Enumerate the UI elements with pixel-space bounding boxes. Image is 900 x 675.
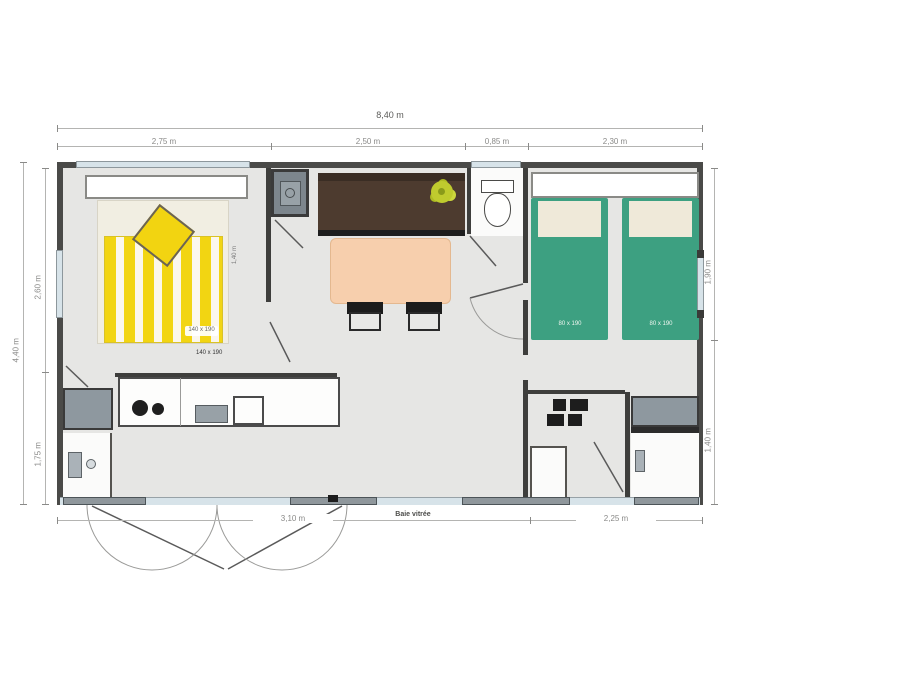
wall-twin-room-1: [523, 168, 528, 283]
bay-window-band: [60, 497, 700, 505]
closet-room: [530, 446, 567, 499]
fridge-cabinet: [63, 388, 113, 430]
wardrobe: [631, 396, 699, 427]
chair-right-seat: [408, 312, 440, 331]
twin-bed-right-size: 80 x 190: [631, 321, 691, 327]
sink-icon: [195, 405, 228, 423]
appliance-icon: [547, 399, 591, 427]
master-bed-side-dim: 1,40 m: [232, 246, 238, 264]
stove-burner-small-icon: [152, 403, 164, 415]
window-right: [697, 250, 704, 318]
wall-twin-room-2: [523, 300, 528, 355]
dim-top-seg-3: 0,85 m: [472, 137, 522, 146]
dim-top-total: 8,40 m: [340, 110, 440, 120]
twin-bed-right-pillow: [629, 201, 692, 237]
master-headboard-shelf: [85, 175, 248, 199]
kitchen-worktop-edge: [318, 173, 465, 181]
dim-right-seg-1: 1,90 m: [704, 225, 713, 285]
master-bed-size-text: 140 x 190: [196, 350, 222, 356]
dining-table: [330, 238, 451, 304]
stove-burners-icon: [132, 400, 148, 416]
toilet-tank-icon: [481, 180, 514, 193]
door-handle-icon: [328, 495, 338, 502]
twin-bed-left-size: 80 x 190: [540, 321, 600, 327]
dim-right-seg-line: [714, 168, 715, 505]
dim-left-seg-1: 2,60 m: [34, 240, 43, 300]
kitchen-counter-divider: [180, 378, 181, 426]
dim-left-seg-2: 1,75 m: [34, 407, 43, 467]
window-master-top: [76, 161, 250, 168]
window-left: [56, 250, 63, 318]
dim-top-seg-1: 2,75 m: [124, 137, 204, 146]
dim-right-seg-2: 1,40 m: [704, 393, 713, 453]
dim-top-seg-2: 2,50 m: [328, 137, 408, 146]
washbasin-tap-icon: [86, 459, 96, 469]
dim-left-seg-line: [45, 168, 46, 505]
shower-icon: [635, 450, 645, 472]
wall-bathroom-hall: [528, 390, 625, 394]
chair-left-seat: [349, 312, 381, 331]
kitchen-counter: [118, 377, 340, 427]
dim-left-total: 4,40 m: [12, 303, 21, 363]
washbasin-icon: [68, 452, 82, 478]
dim-top-total-line: [57, 128, 703, 129]
dim-left-total-line: [23, 162, 24, 505]
plant-center-icon: [438, 188, 445, 195]
twin-headboard-shelf: [531, 172, 699, 198]
boiler-dial-icon: [285, 188, 295, 198]
wall-twin-room-3: [523, 380, 528, 505]
wall-shower-room: [625, 392, 630, 505]
dim-bottom-seg-2: 2,25 m: [576, 514, 656, 523]
dim-top-seg-4: 2,30 m: [575, 137, 655, 146]
floor-plan-canvas: 8,40 m 2,75 m 2,50 m 0,85 m 2,30 m 4,40 …: [0, 0, 900, 675]
toilet-icon: [484, 193, 511, 227]
window-wc-top: [471, 161, 521, 168]
dim-bottom-seg-1: 3,10 m: [253, 514, 333, 523]
counter-module: [233, 396, 264, 425]
master-bed-size-tag: 140 x 190: [185, 326, 218, 336]
bay-window-label: Baie vitrée: [383, 511, 443, 518]
twin-bed-left-pillow: [538, 201, 601, 237]
dim-top-seg-line: [57, 146, 703, 147]
